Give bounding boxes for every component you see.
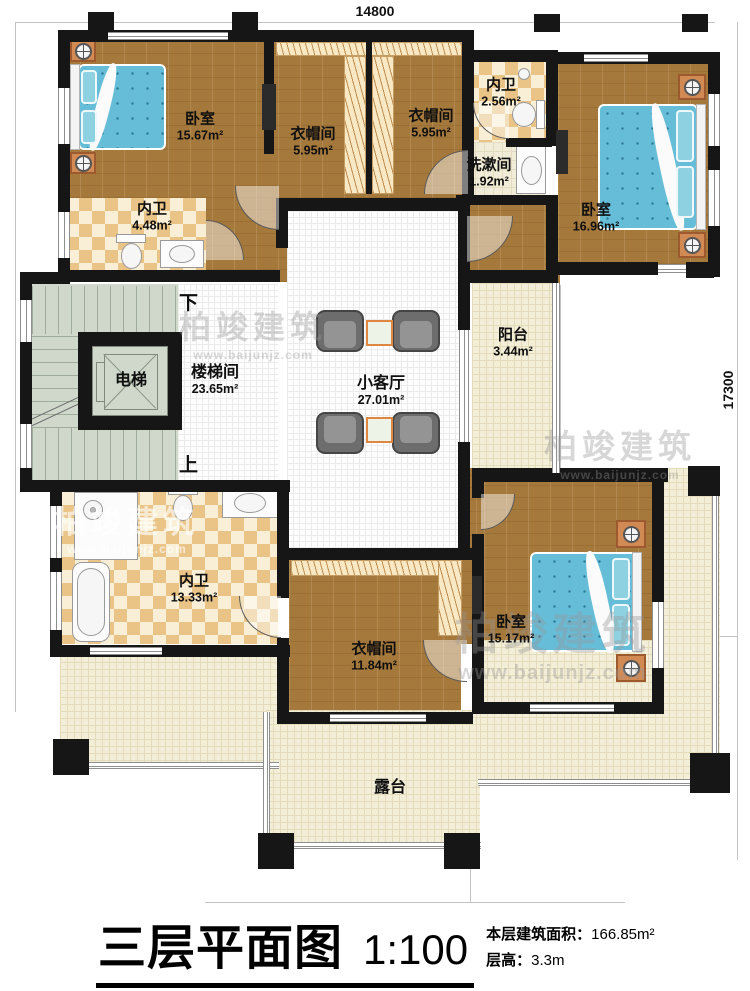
floor-height-label: 层高： — [486, 952, 531, 969]
room-label-closet-t2: 衣帽间 5.95m² — [408, 109, 453, 140]
room-name: 电梯 — [115, 372, 147, 390]
room-label-bath-bl: 内卫 13.33m² — [171, 574, 218, 605]
terrace-railing — [712, 470, 719, 782]
room-label-bedroom-tr: 卧室 16.96m² — [573, 203, 620, 234]
wall — [472, 534, 484, 714]
room-label-living: 小客厅 27.01m² — [357, 375, 405, 407]
room-area: 27.01m² — [357, 393, 405, 407]
nightstand — [616, 520, 646, 548]
sliding-door-panel — [262, 84, 276, 130]
pillar — [232, 12, 258, 32]
wardrobe-closet2 — [372, 56, 394, 194]
room-label-terrace: 露台 — [374, 779, 406, 797]
plan-title: 三层平面图 — [98, 908, 343, 978]
room-name: 露台 — [374, 779, 406, 797]
pillow — [676, 110, 694, 162]
room-area: 5.95m² — [290, 143, 335, 157]
lamp-icon — [623, 526, 640, 543]
sink-basin — [234, 493, 266, 513]
room-area: 23.65m² — [191, 382, 239, 396]
sliding-door — [459, 330, 469, 442]
window — [90, 647, 162, 655]
chair-cushion — [324, 321, 356, 348]
window — [652, 602, 664, 668]
pillow — [81, 70, 97, 104]
terrace-railing — [263, 712, 270, 846]
room-area: 13.33m² — [171, 590, 218, 604]
wall — [546, 262, 658, 275]
room-area: 5.95m² — [408, 125, 453, 139]
window — [530, 704, 614, 712]
pillar — [686, 262, 714, 278]
wall — [50, 645, 290, 657]
window — [584, 54, 648, 62]
pillow — [612, 558, 630, 600]
stair-flight-bottom — [32, 428, 178, 480]
lamp-icon — [623, 660, 640, 677]
sink-basin — [169, 245, 195, 263]
pillar — [690, 753, 730, 793]
toilet-bowl — [173, 495, 193, 521]
side-table — [366, 417, 393, 443]
room-label-stairwell: 楼梯间 23.65m² — [191, 364, 239, 396]
floor-area-label: 本层建筑面积： — [486, 926, 591, 943]
bathtub-basin — [77, 568, 105, 636]
window — [58, 88, 70, 144]
wardrobe-closet1 — [344, 56, 366, 194]
floor-terrace-mid — [266, 710, 480, 846]
dimension-top: 14800 — [330, 3, 420, 19]
room-label-elevator: 电梯 — [115, 372, 147, 390]
toilet-tank — [116, 234, 146, 243]
lamp-icon — [75, 43, 92, 60]
floor-balcony — [472, 283, 556, 471]
room-name: 楼梯间 — [191, 364, 239, 382]
dimension-right: 17300 — [720, 354, 736, 426]
wall — [458, 270, 558, 283]
shower-head-dot — [90, 507, 96, 513]
room-area: 4.48m² — [132, 218, 172, 232]
wall — [506, 138, 552, 147]
chair-cushion — [324, 416, 356, 443]
eave-line-right — [737, 22, 738, 860]
wall — [472, 468, 668, 482]
room-name: 卧室 — [177, 112, 224, 129]
toilet-tank — [536, 100, 545, 129]
armchair — [316, 412, 364, 454]
wall — [58, 270, 280, 282]
eave-line-top — [15, 22, 715, 23]
wall — [277, 548, 473, 560]
room-area: 16.96m² — [573, 219, 620, 233]
room-label-bath-tl: 内卫 4.48m² — [132, 202, 172, 233]
room-label-closet-b: 衣帽间 11.84m² — [351, 642, 397, 673]
wall — [277, 198, 467, 211]
wardrobe-closetb-top — [291, 560, 439, 576]
room-name: 内卫 — [171, 574, 218, 591]
shower-stall — [74, 492, 138, 560]
room-name: 卧室 — [573, 203, 620, 220]
room-area: 3.44m² — [493, 344, 533, 358]
wall — [462, 138, 472, 147]
title-block: 三层平面图 1:100 本层建筑面积：166.85m² 层高：3.3m — [96, 908, 655, 988]
wall — [458, 442, 470, 550]
nightstand — [616, 654, 646, 682]
room-label-balcony: 阳台 3.44m² — [493, 328, 533, 359]
armchair — [392, 412, 440, 454]
room-name: 内卫 — [481, 78, 521, 95]
room-label-bath-tr: 内卫 2.56m² — [481, 78, 521, 109]
stair-flight-top — [32, 286, 178, 334]
window — [20, 300, 32, 342]
elevator-door-slot — [96, 362, 105, 402]
window — [50, 506, 62, 558]
title-info: 本层建筑面积：166.85m² 层高：3.3m — [486, 908, 654, 975]
nightstand — [678, 232, 706, 258]
floor-terrace-left — [60, 655, 278, 765]
pillar — [258, 833, 294, 869]
room-name: 衣帽间 — [408, 109, 453, 126]
nightstand — [70, 40, 96, 62]
floor-area-row: 本层建筑面积：166.85m² — [486, 922, 654, 948]
floor-height-value: 3.3m — [531, 952, 564, 969]
pillar — [444, 833, 480, 869]
pillar — [88, 12, 114, 32]
room-name: 洗漱间 — [466, 158, 511, 175]
pillar — [688, 466, 720, 496]
room-label-bedroom-tl: 卧室 15.67m² — [177, 112, 224, 143]
bed-tr-headboard — [696, 104, 706, 230]
nightstand — [70, 152, 96, 174]
room-name: 衣帽间 — [290, 127, 335, 144]
pillar — [534, 14, 560, 32]
pillow — [676, 166, 694, 218]
eave-line-left — [15, 22, 16, 712]
room-label-wash-tr: 洗漱间 1.92m² — [466, 158, 511, 189]
room-name: 小客厅 — [357, 375, 405, 393]
room-area: 2.56m² — [481, 94, 521, 108]
title-underline: 三层平面图 1:100 — [96, 908, 474, 988]
room-name: 内卫 — [132, 202, 172, 219]
bed-tl-headboard — [70, 64, 80, 150]
wall — [456, 195, 552, 205]
wall — [708, 52, 720, 277]
lamp-icon — [75, 155, 92, 172]
room-name: 衣帽间 — [351, 642, 397, 659]
window — [708, 170, 720, 226]
chair-cushion — [400, 321, 432, 348]
floor-area-value: 166.85m² — [591, 926, 654, 943]
wall — [652, 468, 664, 602]
pillow — [81, 110, 97, 144]
room-area: 1.92m² — [466, 174, 511, 188]
window — [20, 424, 32, 468]
window — [50, 572, 62, 630]
bed-br-headboard — [632, 552, 642, 652]
floor-plan: 卧室 15.67m² 衣帽间 5.95m² 衣帽间 5.95m² 内卫 4.48… — [0, 0, 750, 991]
chair-cushion — [400, 416, 432, 443]
floor-closet-b — [289, 558, 461, 714]
armchair — [316, 310, 364, 352]
eave-line-bottom — [205, 902, 625, 903]
toilet-bowl — [121, 243, 142, 269]
wardrobe-closetb-right — [438, 560, 462, 636]
window — [330, 714, 426, 722]
lamp-icon — [684, 79, 701, 96]
wall — [277, 482, 289, 598]
stair-up-label: 上 — [179, 450, 198, 477]
terrace-railing — [478, 779, 722, 786]
pillar — [53, 739, 89, 775]
tv-console — [472, 576, 482, 614]
wall — [366, 42, 372, 194]
room-name: 卧室 — [488, 615, 535, 632]
stair-down-label: 下 — [179, 288, 198, 315]
room-label-bedroom-br: 卧室 15.17m² — [488, 615, 535, 646]
side-table — [366, 320, 393, 346]
lamp-icon — [684, 237, 701, 254]
room-label-closet-t1: 衣帽间 5.95m² — [290, 127, 335, 158]
window — [658, 264, 688, 273]
pillar — [682, 14, 708, 32]
room-area: 15.67m² — [177, 128, 224, 142]
floor-height-row: 层高：3.3m — [486, 948, 654, 974]
window — [708, 94, 720, 146]
armchair — [392, 310, 440, 352]
sink-basin — [521, 156, 542, 185]
room-area: 11.84m² — [351, 658, 397, 672]
nightstand — [678, 74, 706, 100]
tv-console — [556, 130, 568, 174]
pillow — [612, 604, 630, 646]
room-area: 15.17m² — [488, 631, 535, 645]
window — [58, 212, 70, 258]
room-name: 阳台 — [493, 328, 533, 345]
balcony-railing — [552, 283, 560, 473]
wall — [462, 50, 558, 62]
window — [108, 32, 228, 40]
plan-scale: 1:100 — [363, 926, 468, 974]
